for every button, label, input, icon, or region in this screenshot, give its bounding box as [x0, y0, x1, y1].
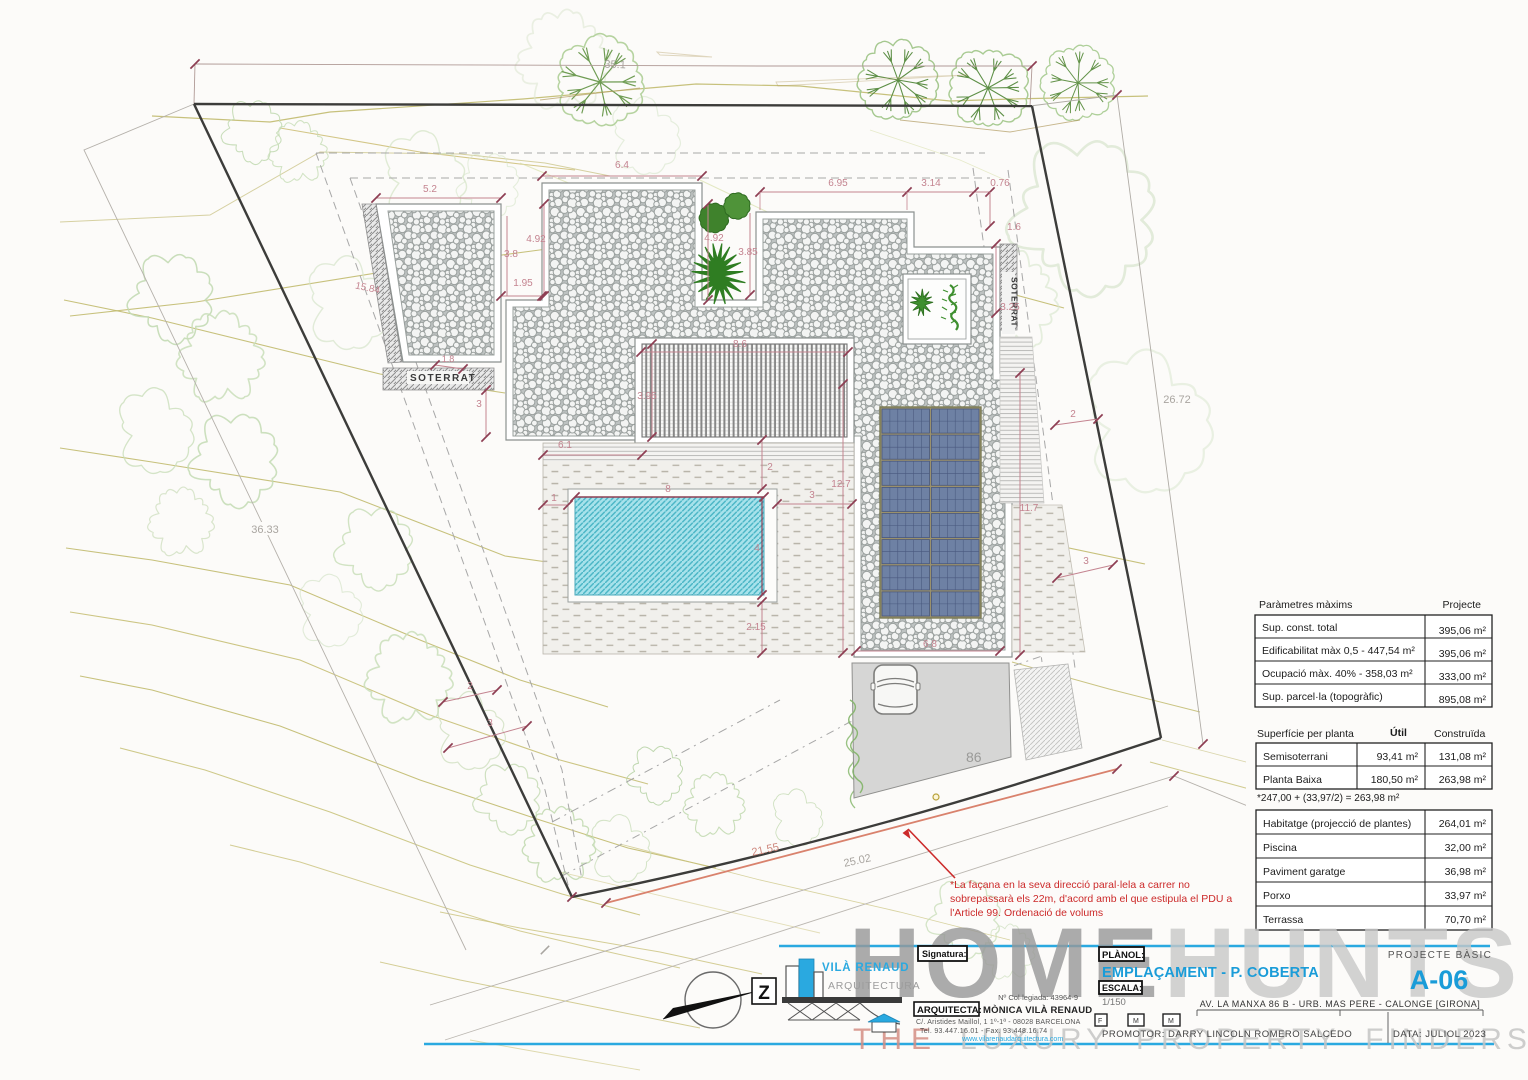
svg-text:www.vilarenaudarquitectura.com: www.vilarenaudarquitectura.com	[961, 1036, 1063, 1043]
svg-text:180,50 m²: 180,50 m²	[1371, 774, 1419, 786]
svg-text:395,06 m²: 395,06 m²	[1439, 625, 1487, 637]
svg-text:264,01 m²: 264,01 m²	[1439, 818, 1487, 830]
svg-text:36.33: 36.33	[251, 524, 279, 536]
svg-text:Signatura:: Signatura:	[922, 949, 967, 959]
svg-text:3.14: 3.14	[921, 178, 941, 189]
svg-text:2: 2	[1070, 409, 1076, 420]
svg-text:263,98 m²: 263,98 m²	[1439, 774, 1487, 786]
svg-text:Planta Baixa: Planta Baixa	[1263, 774, 1322, 786]
svg-text:93,41 m²: 93,41 m²	[1377, 751, 1419, 763]
svg-text:*La façana en la seva direcció: *La façana en la seva direcció paral·lel…	[950, 879, 1190, 891]
svg-text:6.8: 6.8	[923, 639, 937, 650]
svg-text:4.92: 4.92	[704, 233, 724, 244]
svg-text:2.15: 2.15	[746, 622, 766, 633]
svg-text:Sup. const. total: Sup. const. total	[1262, 622, 1337, 634]
svg-text:Útil: Útil	[1390, 726, 1407, 739]
svg-text:333,00 m²: 333,00 m²	[1439, 671, 1487, 683]
svg-text:3.95: 3.95	[637, 391, 657, 402]
svg-text:895,08 m²: 895,08 m²	[1439, 694, 1487, 706]
svg-text:Sup. parcel·la (topogràfic): Sup. parcel·la (topogràfic)	[1262, 691, 1383, 703]
svg-text:AV. LA MANXA 86 B - URB. MAS P: AV. LA MANXA 86 B - URB. MAS PERE - CALO…	[1200, 999, 1481, 1009]
svg-text:3: 3	[1083, 556, 1089, 567]
svg-text:3.25: 3.25	[1000, 302, 1020, 313]
svg-text:Construïda: Construïda	[1434, 728, 1486, 740]
svg-text:Nº Col·legiada: 43964-9: Nº Col·legiada: 43964-9	[998, 993, 1078, 1002]
svg-text:M: M	[1168, 1018, 1174, 1025]
svg-text:6.4: 6.4	[615, 160, 629, 171]
svg-text:395,06 m²: 395,06 m²	[1439, 648, 1487, 660]
svg-text:Z: Z	[758, 983, 770, 1004]
svg-text:0.76: 0.76	[990, 178, 1010, 189]
svg-text:2: 2	[767, 462, 773, 473]
svg-text:VILÀ RENAUD: VILÀ RENAUD	[822, 961, 909, 974]
svg-text:12.7: 12.7	[831, 479, 851, 490]
svg-text:ARQUITECTURA: ARQUITECTURA	[828, 980, 920, 992]
svg-text:3: 3	[476, 399, 482, 410]
svg-text:sobrepassarà els 22m, d'acord: sobrepassarà els 22m, d'acord amb el que…	[950, 893, 1232, 905]
svg-text:ARQUITECTA:: ARQUITECTA:	[917, 1005, 982, 1016]
svg-text:F: F	[1098, 1018, 1102, 1025]
svg-text:Tel. 93.447.16.01 - Fax. 93.: Tel. 93.447.16.01 - Fax. 93.448.16.74	[920, 1028, 1047, 1035]
svg-text:35.1: 35.1	[604, 59, 626, 72]
svg-text:1.8: 1.8	[442, 354, 455, 364]
svg-text:MÒNICA VILÀ RENAUD: MÒNICA VILÀ RENAUD	[983, 1004, 1092, 1016]
svg-text:2: 2	[467, 681, 473, 692]
svg-text:Projecte: Projecte	[1442, 599, 1481, 611]
svg-text:1/150: 1/150	[1102, 997, 1126, 1008]
svg-text:C/. Aristides Maillol, 1 1º-1: C/. Aristides Maillol, 1 1º-1ª - 08028 B…	[916, 1019, 1081, 1026]
svg-text:PROJECTE BÀSIC: PROJECTE BÀSIC	[1388, 948, 1492, 961]
svg-text:36,98 m²: 36,98 m²	[1445, 866, 1487, 878]
svg-text:11.7: 11.7	[1020, 503, 1039, 514]
svg-text:Piscina: Piscina	[1263, 842, 1297, 854]
svg-text:32,00 m²: 32,00 m²	[1445, 842, 1487, 854]
svg-text:33,97 m²: 33,97 m²	[1445, 890, 1487, 902]
svg-text:Paviment garatge: Paviment garatge	[1263, 866, 1345, 878]
svg-text:4: 4	[754, 543, 760, 554]
svg-text:A-06: A-06	[1410, 965, 1469, 995]
svg-text:Superfície per planta: Superfície per planta	[1257, 728, 1354, 740]
svg-text:Ocupació màx. 40% - 358,03: Ocupació màx. 40% - 358,03 m²	[1262, 668, 1413, 680]
svg-text:*247,00 + (33,97/2) = 263,98 m: *247,00 + (33,97/2) = 263,98 m²	[1257, 793, 1400, 804]
svg-text:SOTERRAT: SOTERRAT	[410, 373, 476, 384]
svg-text:M: M	[1133, 1018, 1139, 1025]
svg-text:6.1: 6.1	[558, 440, 572, 451]
svg-text:3.8: 3.8	[504, 249, 518, 260]
svg-text:86: 86	[966, 749, 982, 765]
svg-text:8: 8	[665, 484, 671, 495]
svg-text:5.2: 5.2	[423, 184, 437, 195]
svg-text:Habitatge (projecció de plante: Habitatge (projecció de plantes)	[1263, 818, 1411, 830]
svg-text:Porxo: Porxo	[1263, 890, 1291, 902]
svg-text:3.85: 3.85	[738, 247, 758, 258]
svg-text:3: 3	[487, 718, 493, 729]
svg-text:Paràmetres màxims: Paràmetres màxims	[1259, 599, 1352, 611]
svg-text:ESCALA:: ESCALA:	[1102, 983, 1142, 993]
svg-text:8.6: 8.6	[733, 339, 747, 350]
svg-text:EMPLAÇAMENT - P. COBERTA: EMPLAÇAMENT - P. COBERTA	[1102, 965, 1319, 981]
svg-text:DATA: JULIOL 2023: DATA: JULIOL 2023	[1393, 1029, 1486, 1040]
svg-text:PROMOTOR: DARRY LINCOLN ROMERO: PROMOTOR: DARRY LINCOLN ROMERO SALCEDO	[1102, 1029, 1352, 1040]
svg-text:1.95: 1.95	[513, 278, 533, 289]
svg-text:4.92: 4.92	[526, 234, 546, 245]
svg-text:6.95: 6.95	[828, 178, 848, 189]
svg-text:26.72: 26.72	[1163, 394, 1191, 406]
svg-text:3: 3	[809, 490, 815, 501]
svg-text:Semisoterrani: Semisoterrani	[1263, 751, 1328, 763]
svg-text:Edificabilitat màx 0,5 - 447,5: Edificabilitat màx 0,5 - 447,54 m²	[1262, 645, 1415, 657]
svg-text:PLÀNOL:: PLÀNOL:	[1102, 950, 1144, 961]
svg-text:131,08 m²: 131,08 m²	[1439, 751, 1487, 763]
svg-text:1: 1	[551, 493, 557, 504]
svg-text:1.6: 1.6	[1007, 222, 1021, 233]
